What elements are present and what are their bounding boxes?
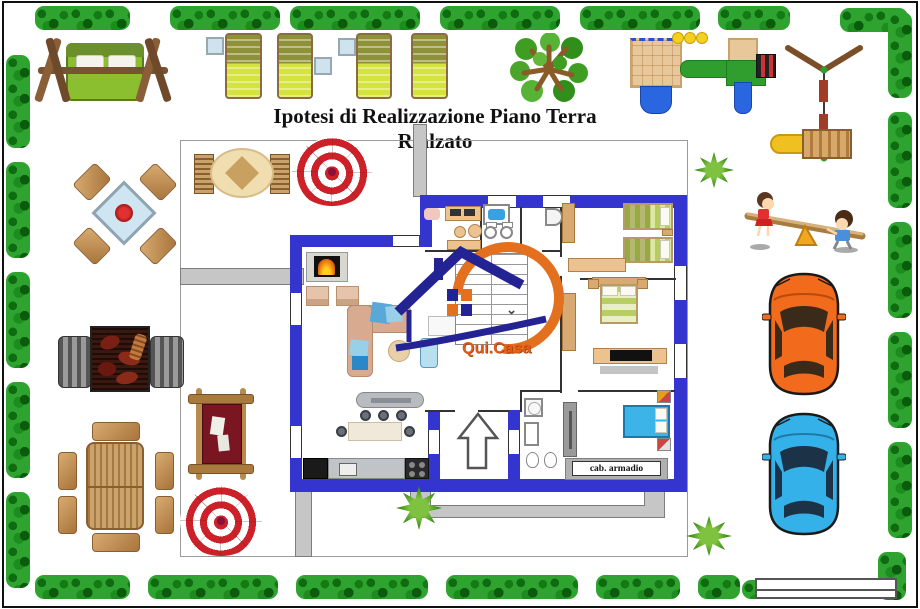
walk-in-closet-label: cab. armadio	[572, 461, 661, 476]
flower-centerpiece	[115, 204, 133, 222]
laptop	[450, 209, 461, 216]
grill	[90, 326, 150, 392]
hedge-segment	[698, 575, 740, 599]
barbecue-grill	[58, 322, 183, 397]
island-hood	[356, 392, 424, 408]
cushion	[349, 339, 369, 357]
hedge-segment	[596, 575, 680, 599]
bathtub-water	[488, 209, 505, 220]
armchair	[336, 286, 359, 306]
hedge-segment	[446, 575, 578, 599]
chair	[58, 452, 77, 490]
bidet	[544, 452, 557, 468]
washbasin-d	[545, 208, 563, 226]
dresser	[568, 258, 626, 272]
ball	[684, 32, 696, 44]
logo-text: Qui.Casa	[462, 340, 562, 358]
legend-box-divider	[757, 589, 895, 591]
hedge-segment	[888, 442, 912, 538]
burner	[409, 462, 415, 468]
pillow	[602, 286, 618, 296]
blue-car	[762, 410, 846, 538]
entry-steps-inner	[430, 490, 645, 506]
side-table	[206, 37, 224, 55]
hood-slot	[371, 398, 411, 403]
lounger-bar	[188, 394, 254, 404]
stool	[396, 410, 407, 421]
gray-wall	[180, 268, 304, 285]
rug	[424, 208, 440, 220]
meat	[98, 333, 121, 352]
hedge-segment	[580, 6, 700, 30]
cushion-red	[202, 404, 242, 464]
burner	[419, 462, 425, 468]
side-table	[338, 38, 356, 56]
window	[674, 266, 687, 300]
gray-wall	[413, 124, 427, 197]
kitchen-counter	[328, 458, 405, 479]
chair	[454, 226, 466, 238]
burner	[419, 471, 425, 477]
grill-side-table	[58, 336, 92, 388]
pillow	[655, 408, 667, 420]
fridge	[303, 458, 328, 479]
nightstand	[657, 390, 671, 403]
lot-line	[180, 556, 688, 557]
nightstand	[662, 229, 673, 236]
sink	[524, 422, 539, 446]
meat	[115, 370, 139, 386]
slide-blue	[640, 86, 672, 114]
chair	[138, 226, 178, 266]
wall	[420, 479, 687, 492]
platform	[630, 38, 682, 88]
sliding-door	[563, 402, 577, 457]
skewer	[128, 333, 147, 361]
window	[428, 430, 440, 454]
laptop	[464, 209, 475, 216]
tree-icon	[510, 33, 588, 105]
chair	[72, 162, 112, 202]
slide-chute	[770, 134, 804, 154]
garden-swing	[38, 33, 168, 109]
chair	[155, 452, 174, 490]
lot-line	[180, 140, 687, 141]
nightstand	[637, 279, 648, 289]
burner	[409, 471, 415, 477]
red-cushion-lounger	[186, 388, 258, 480]
fireplace	[306, 252, 348, 282]
umbrella-pole	[217, 517, 225, 525]
wooden-dining-set	[52, 422, 180, 550]
stool	[404, 426, 415, 437]
hedge-segment	[6, 492, 30, 588]
sun-lounger	[277, 33, 313, 99]
breakfast-table	[348, 422, 402, 441]
wooden-slide	[770, 126, 855, 164]
hedge-segment	[718, 6, 790, 30]
legend-box	[755, 578, 897, 599]
kitchen-sink	[339, 463, 357, 476]
fire	[318, 259, 335, 275]
playground	[628, 30, 778, 112]
hedge-segment	[888, 12, 912, 98]
cabinet	[562, 203, 575, 243]
armchair	[306, 286, 329, 306]
hedge-segment	[35, 6, 130, 30]
nightstand	[657, 438, 671, 451]
entrance-arrow	[455, 412, 501, 472]
pillow	[660, 207, 670, 226]
platform	[728, 38, 758, 62]
sun-lounger	[225, 33, 262, 99]
shower	[524, 398, 543, 417]
toilet	[526, 452, 539, 468]
slide-platform	[802, 129, 852, 159]
orange-car	[762, 270, 846, 398]
hedge-segment	[6, 272, 30, 368]
hedge-segment	[888, 222, 912, 318]
pillow	[660, 240, 670, 259]
table-split	[88, 486, 142, 488]
pole-blue	[734, 82, 752, 114]
lot-line	[687, 140, 688, 557]
window	[290, 293, 302, 325]
side-table	[314, 57, 332, 75]
hedge-segment	[6, 162, 30, 258]
pillow	[210, 416, 225, 436]
umbrella-pole	[328, 168, 336, 176]
rug	[600, 366, 658, 374]
tv	[610, 350, 652, 361]
hedge-segment	[6, 55, 30, 148]
sun-lounger	[356, 33, 392, 99]
meat	[98, 362, 116, 376]
chair	[92, 422, 140, 441]
page-title: Ipotesi di Realizzazione Piano Terra Ria…	[235, 104, 635, 154]
partition	[520, 390, 522, 412]
stool	[360, 410, 371, 421]
nightstand	[588, 279, 599, 289]
chair	[58, 496, 77, 534]
window	[674, 344, 687, 378]
hedge-segment	[6, 382, 30, 478]
sun-lounger	[411, 33, 448, 99]
hedge-segment	[290, 6, 420, 30]
hedge-segment	[888, 332, 912, 428]
climbing-wall	[756, 54, 776, 78]
partition	[425, 410, 455, 412]
hedge-segment	[296, 575, 428, 599]
dining-table	[86, 442, 144, 530]
ball	[672, 32, 684, 44]
shower-drain	[528, 402, 541, 415]
chair	[468, 224, 482, 238]
chair	[72, 226, 112, 266]
pillow	[217, 434, 230, 451]
chair	[155, 496, 174, 534]
hedge-segment	[148, 575, 278, 599]
grill-side-table	[150, 336, 184, 388]
partition	[522, 390, 562, 392]
hedge-segment	[35, 575, 130, 599]
floor-plan-poster: Ipotesi di Realizzazione Piano Terra Ria…	[0, 0, 920, 609]
door-handle	[569, 411, 572, 449]
seesaw-children	[738, 192, 873, 254]
glass-table-set	[62, 160, 187, 270]
window	[508, 430, 520, 454]
chair	[92, 533, 140, 552]
cooktop	[405, 458, 429, 479]
stool	[378, 410, 389, 421]
hedge-segment	[888, 112, 912, 208]
ball	[696, 32, 708, 44]
pillow	[620, 286, 636, 296]
window	[290, 426, 302, 458]
wall	[290, 479, 430, 492]
pillow	[655, 421, 667, 433]
stool	[336, 426, 347, 437]
oval-table-set	[194, 146, 290, 202]
hedge-segment	[170, 6, 280, 30]
chair	[138, 162, 178, 202]
cushion	[352, 356, 368, 370]
lounger-bar	[188, 464, 254, 474]
hedge-segment	[440, 6, 560, 30]
